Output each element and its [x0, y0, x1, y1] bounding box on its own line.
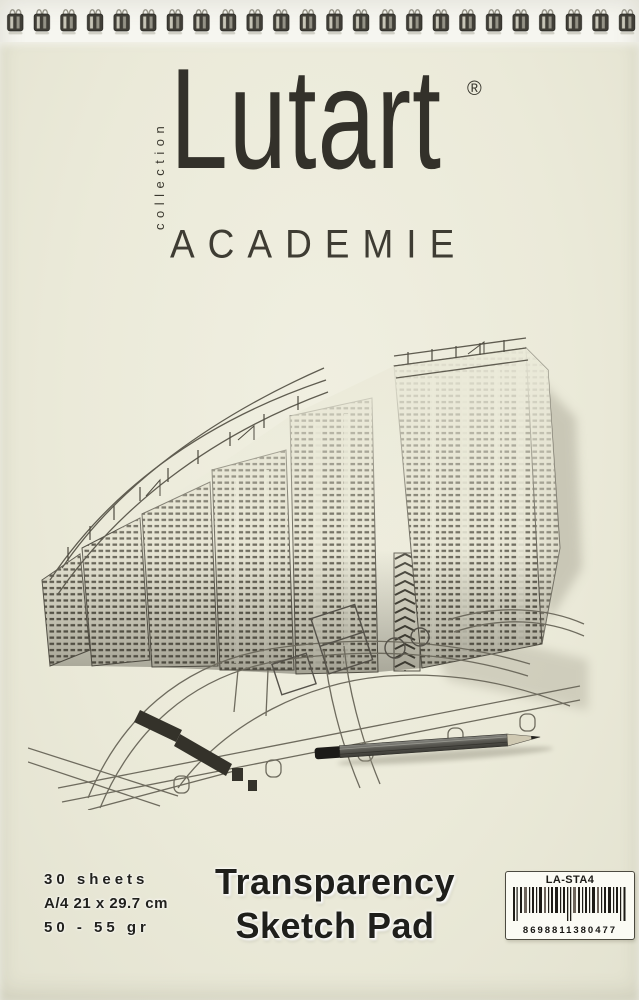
brand-logo: Lutart — [170, 48, 442, 192]
product-specs: 30 sheets A/4 21 x 29.7 cm 50 - 55 gr — [44, 868, 168, 940]
line-name: ACADEMIE — [170, 222, 467, 267]
specs-sheets: 30 sheets — [44, 868, 168, 892]
product-title-line2: Sketch Pad — [188, 904, 482, 948]
collection-label: collection — [150, 72, 172, 230]
specs-weight: 50 - 55 gr — [44, 916, 168, 940]
barcode-label: LA-STA4 8698811380477 — [505, 871, 635, 940]
product-title-line1: Transparency — [188, 860, 482, 904]
sku-text: LA-STA4 — [506, 874, 634, 886]
pencil-illustration — [314, 731, 553, 770]
barcode-bars — [513, 887, 627, 923]
sketch-pad-cover-photo: collection Lutart ® ACADEMIE — [0, 0, 639, 1000]
specs-size: A/4 21 x 29.7 cm — [44, 892, 168, 916]
barcode-number: 8698811380477 — [506, 925, 634, 936]
building-illustration — [28, 318, 612, 810]
product-title: Transparency Sketch Pad — [188, 860, 482, 948]
registered-trademark-icon: ® — [467, 78, 482, 101]
